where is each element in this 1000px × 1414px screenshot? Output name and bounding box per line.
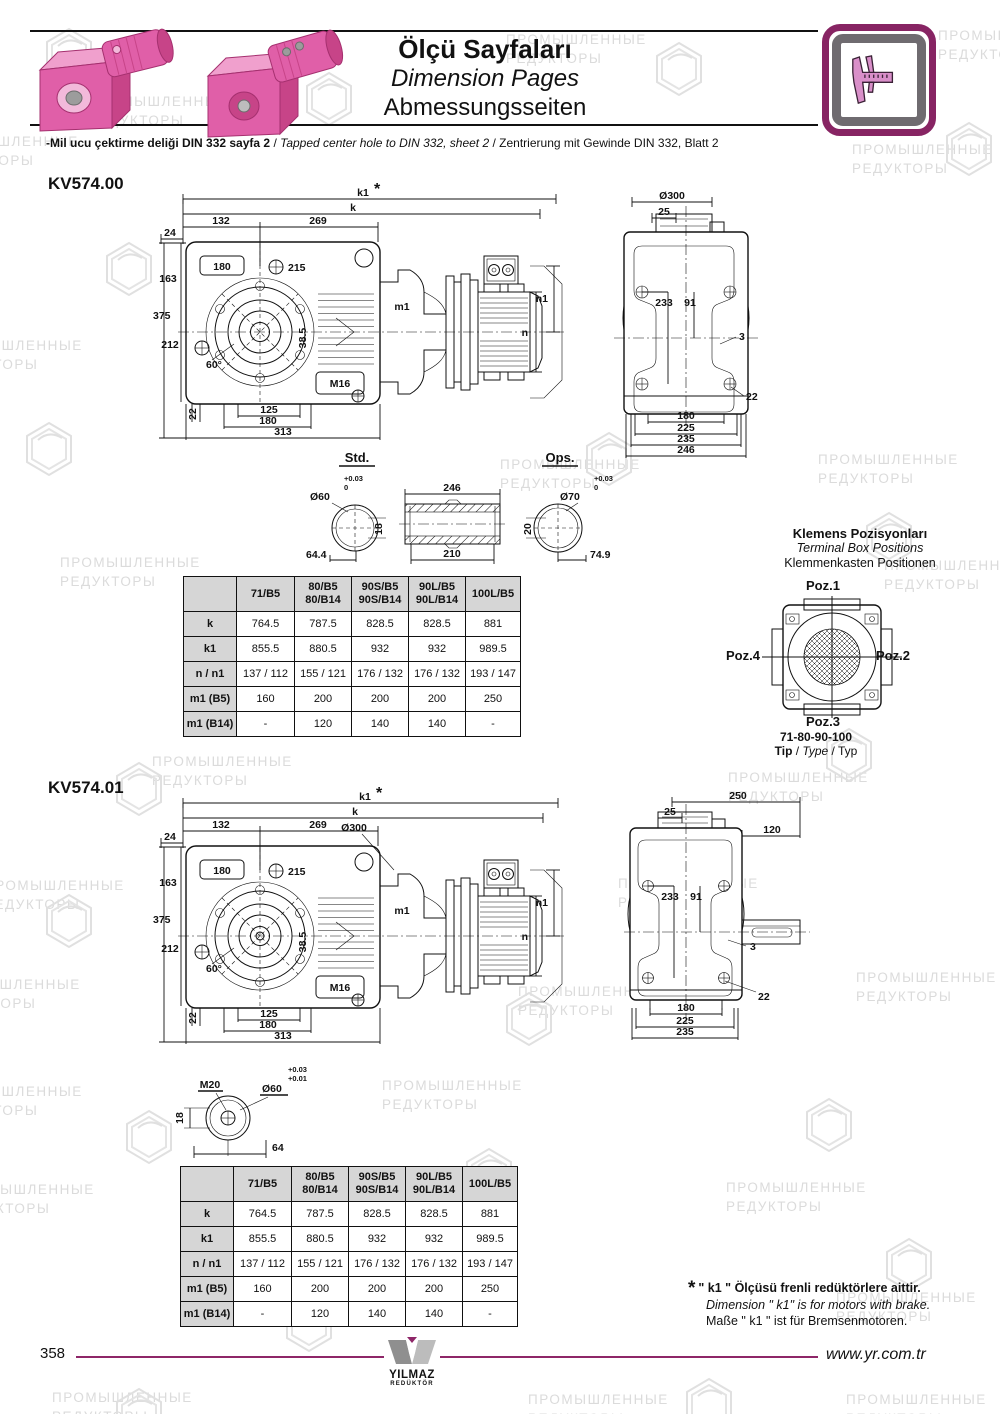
dim-22: 22	[758, 991, 770, 1003]
watermark-text: ПРОМЫШЛЕННЫЕРЕДУКТОРЫ	[846, 1390, 987, 1414]
dimension-value-cell: 787.5	[292, 1202, 349, 1227]
tip-de: Typ	[838, 744, 857, 758]
gearmotor-photo-1	[40, 27, 176, 131]
dim-m16: M16	[330, 982, 351, 994]
dimension-value-cell: 828.5	[352, 612, 409, 637]
dim-375: 375	[153, 310, 171, 322]
brake-footnote: *" k1 " Ölçüsü frenli redüktörlere aitti…	[688, 1280, 930, 1329]
dimension-value-cell: 881	[463, 1202, 518, 1227]
table-row: k1855.5880.5932932989.5	[181, 1227, 518, 1252]
table-row-label: n / n1	[181, 1252, 234, 1277]
table-column-header: 90S/B590S/B14	[349, 1167, 406, 1202]
dim-91: 91	[690, 891, 702, 903]
dimension-value-cell: 137 / 112	[234, 1252, 292, 1277]
table-row-label: k1	[181, 1227, 234, 1252]
footnote-line-turkish: *" k1 " Ölçüsü frenli redüktörlere aitti…	[688, 1280, 930, 1297]
dimension-value-cell: 880.5	[292, 1227, 349, 1252]
dimension-value-cell: 855.5	[237, 637, 295, 662]
std-dia: Ø60	[310, 491, 330, 503]
table-row-label: k1	[184, 637, 237, 662]
dimension-value-cell: 764.5	[234, 1202, 292, 1227]
dimension-value-cell: 200	[352, 687, 409, 712]
dimension-value-cell: 200	[295, 687, 352, 712]
catalog-page: ПРОМЫШЛЕННЫЕРЕДУКТОРЫПРОМЫШЛЕННЫЕРЕДУКТО…	[0, 0, 1000, 1414]
dimension-value-cell: 989.5	[463, 1227, 518, 1252]
page-title: Ölçü Sayfaları Dimension Pages Abmessung…	[250, 34, 720, 122]
logo-name: YILMAZ	[386, 1370, 438, 1381]
dimension-value-cell: 881	[466, 612, 521, 637]
yilmaz-logo-icon	[388, 1337, 436, 1365]
dim-n: n	[522, 931, 528, 943]
poz1-label: Poz.1	[806, 578, 840, 593]
terminal-box-title-german: Klemmenkasten Positionen	[748, 556, 972, 571]
poz2-label: Poz.2	[876, 648, 910, 663]
watermark-text: ПРОМЫШЛЕННЫЕРЕДУКТОРЫ	[60, 553, 201, 591]
shaft-tol-lo: +0.01	[288, 1074, 307, 1083]
housing-side-view	[614, 206, 760, 440]
table-row: m1 (B14)-120140140-	[181, 1302, 518, 1327]
dim-24: 24	[164, 831, 176, 843]
terminal-box-title-turkish: Klemens Pozisyonları	[748, 526, 972, 541]
dimension-value-cell: 932	[352, 637, 409, 662]
terminal-box-type-note: 71-80-90-100 Tip / Type / Typ	[745, 730, 887, 758]
table-column-header: 90S/B590S/B14	[352, 577, 409, 612]
dimension-value-cell: 176 / 132	[409, 662, 466, 687]
table-row-label: m1 (B5)	[184, 687, 237, 712]
shaft-tol-hi: +0.03	[288, 1065, 307, 1074]
dim-163: 163	[159, 273, 177, 285]
std-label: Std.	[345, 450, 370, 465]
table-row-label: k	[181, 1202, 234, 1227]
dim-233: 233	[661, 891, 679, 903]
kv57401-shaft-detail-drawing: M20 +0.03 +0.01 Ø60 18 64	[176, 1058, 376, 1162]
footnote-line-german: Maße " k1 " ist für Bremsenmotoren.	[706, 1313, 930, 1329]
dim-k1: k1	[357, 187, 369, 199]
subtitle-turkish: -Mil ucu çektirme deliği DIN 332 sayfa 2	[46, 136, 270, 150]
dim-313: 313	[274, 426, 292, 438]
dimension-value-cell: 176 / 132	[406, 1252, 463, 1277]
dim-269: 269	[309, 819, 327, 831]
dim-235: 235	[676, 1026, 694, 1038]
dim-180: 180	[677, 1002, 695, 1014]
table-column-header: 90L/B590L/B14	[409, 577, 466, 612]
dimension-value-cell: 828.5	[406, 1202, 463, 1227]
motor-side-profile	[380, 256, 562, 398]
table-column-header: 100L/B5	[463, 1167, 518, 1202]
table-row-label: m1 (B14)	[184, 712, 237, 737]
table-column-header	[184, 577, 237, 612]
dim-163: 163	[159, 877, 177, 889]
footer-rule-right	[440, 1356, 818, 1358]
watermark-hexagon-logo	[40, 892, 98, 950]
dim-k: k	[350, 202, 356, 214]
dimension-labels: k1 * k 132 269 24 Ø300 180 215 163 375 2…	[153, 785, 548, 1042]
dim-m16: M16	[330, 378, 351, 390]
watermark-text: ПРОМЫШЛЕННЫЕРЕДУКТОРЫ	[726, 1178, 867, 1216]
dimension-value-cell: 764.5	[237, 612, 295, 637]
table-row-label: m1 (B5)	[181, 1277, 234, 1302]
table-row: n / n1137 / 112155 / 121176 / 132176 / 1…	[181, 1252, 518, 1277]
dim-k1-star: *	[376, 785, 383, 802]
dimension-value-cell: 250	[463, 1277, 518, 1302]
watermark-text: ПРОМЫШЛЕННЫЕРЕДУКТОРЫ	[528, 1390, 669, 1414]
watermark-text: ПРОМЫШЛЕННЫЕРЕДУКТОРЫ	[818, 450, 959, 488]
subtitle-english: Tapped center hole to DIN 332, sheet 2	[280, 136, 489, 150]
ops-tol-lo: 0	[594, 483, 598, 492]
table-column-header: 80/B580/B14	[292, 1167, 349, 1202]
watermark-hexagon-logo	[120, 1108, 178, 1166]
title-german: Abmessungsseiten	[250, 93, 720, 122]
dim-60deg: 60°	[206, 359, 222, 371]
watermark-hexagon-logo	[680, 1376, 738, 1414]
watermark-hexagon-logo	[110, 1386, 168, 1414]
dimension-value-cell: 193 / 147	[463, 1252, 518, 1277]
std-tol-hi: +0.03	[344, 474, 363, 483]
dim-132: 132	[212, 215, 230, 227]
table-column-header: 90L/B590L/B14	[406, 1167, 463, 1202]
website-link[interactable]: www.yr.com.tr	[826, 1346, 926, 1364]
dimension-value-cell: 828.5	[349, 1202, 406, 1227]
watermark-text: ПРОМЫШЛЕННЫЕРЕДУКТОРЫ	[856, 968, 997, 1006]
dim-k: k	[352, 806, 358, 818]
dim-n1: n1	[536, 293, 548, 305]
table-row: m1 (B14)-120140140-	[184, 712, 521, 737]
dimension-value-cell: 140	[406, 1302, 463, 1327]
dim-215: 215	[288, 262, 306, 274]
table-column-header: 100L/B5	[466, 577, 521, 612]
watermark-text: ПРОМЫШЛЕННЫЕРЕДУКТОРЫ	[382, 1076, 523, 1114]
dimension-labels: k1 * k 132 269 24 180 215 163 375 212 60…	[153, 181, 548, 438]
table-row: k764.5787.5828.5828.5881	[181, 1202, 518, 1227]
ops-label: Ops.	[546, 450, 575, 465]
company-logo: YILMAZ REDÜKTÖR	[386, 1337, 438, 1388]
table-row-label: n / n1	[184, 662, 237, 687]
sleeve-inner-dim: 210	[443, 548, 461, 560]
table-column-header: 71/B5	[237, 577, 295, 612]
dimension-value-cell: 932	[349, 1227, 406, 1252]
watermark-text: ПРОМЫШЛЕННЫЕРЕДУКТОРЫ	[0, 1082, 83, 1120]
terminal-box-title-english: Terminal Box Positions	[748, 541, 972, 556]
dimension-value-cell: 140	[352, 712, 409, 737]
dim-dia300: Ø300	[659, 190, 685, 202]
table-row: m1 (B5)160200200200250	[181, 1277, 518, 1302]
title-turkish: Ölçü Sayfaları	[250, 34, 720, 64]
dim-3: 3	[750, 941, 756, 953]
watermark-hexagon-logo	[20, 420, 78, 478]
footer-rule-left	[76, 1356, 384, 1358]
title-english: Dimension Pages	[250, 64, 720, 93]
dimension-value-cell: 828.5	[409, 612, 466, 637]
table-row-label: m1 (B14)	[181, 1302, 234, 1327]
watermark-text: ПРОМЫШЛЕННЫЕРЕДУКТОРЫ	[938, 26, 1000, 64]
ops-tol-hi: +0.03	[594, 474, 613, 483]
dim-132: 132	[212, 819, 230, 831]
dimension-value-cell: 160	[234, 1277, 292, 1302]
dim-269: 269	[309, 215, 327, 227]
dim-m1: m1	[394, 905, 409, 917]
dim-m20: M20	[200, 1079, 221, 1091]
kv57401-side-drawing: 250 25 120 233 91 3 22 180 225 235	[622, 792, 812, 1040]
motor-side-profile	[380, 860, 562, 1002]
ops-key-dim: 20	[522, 523, 534, 535]
dim-38-5: 38.5	[297, 932, 309, 953]
table-column-header: 71/B5	[234, 1167, 292, 1202]
sleeve-outer-dim: 246	[443, 482, 461, 494]
dimension-value-cell: -	[234, 1302, 292, 1327]
table-row: k764.5787.5828.5828.5881	[184, 612, 521, 637]
dim-22: 22	[187, 1012, 199, 1024]
dimension-value-cell: 880.5	[295, 637, 352, 662]
dimension-value-cell: 787.5	[295, 612, 352, 637]
shaft-options-drawing: Std. +0.03 0 Ø60 18 64.4 246 210 Ops. +0…	[302, 448, 702, 570]
dimension-value-cell: 155 / 121	[295, 662, 352, 687]
table-row: m1 (B5)160200200200250	[184, 687, 521, 712]
dimension-value-cell: 120	[292, 1302, 349, 1327]
housing-side-view	[624, 804, 810, 1026]
poz4-label: Poz.4	[726, 648, 760, 663]
ops-dia: Ø70	[560, 491, 580, 503]
dim-120: 120	[763, 824, 781, 836]
dimension-value-cell: 176 / 132	[352, 662, 409, 687]
dimension-value-cell: 250	[466, 687, 521, 712]
footnote-line-english: Dimension " k1" is for motors with brake…	[706, 1297, 930, 1313]
dim-25: 25	[664, 806, 676, 818]
dimension-value-cell: 932	[409, 637, 466, 662]
dim-180-flange: 180	[213, 865, 231, 877]
caliper-icon-inner-frame	[832, 34, 926, 126]
dim-375: 375	[153, 914, 171, 926]
dim-60deg: 60°	[206, 963, 222, 975]
tip-en: Type	[802, 744, 828, 758]
dim-dia300: Ø300	[341, 822, 367, 834]
tip-tr: Tip	[775, 744, 793, 758]
kv57401-main-drawing: k1 * k 132 269 24 Ø300 180 215 163 375 2…	[148, 790, 568, 1048]
dim-key-18: 18	[174, 1112, 186, 1124]
watermark-text: ПРОМЫШЛЕННЫЕРЕДУКТОРЫ	[0, 336, 83, 374]
section-code-kv57401: KV574.01	[48, 778, 124, 798]
dimension-value-cell: 120	[295, 712, 352, 737]
watermark-text: ПРОМЫШЛЕННЫЕРЕДУКТОРЫ	[152, 752, 293, 790]
dim-180-flange: 180	[213, 261, 231, 273]
std-key-dim: 18	[373, 523, 385, 535]
page-number: 358	[40, 1345, 65, 1362]
dim-dia60: Ø60	[262, 1083, 282, 1095]
table-row: n / n1137 / 112155 / 121176 / 132176 / 1…	[184, 662, 521, 687]
dim-212: 212	[161, 339, 179, 351]
dim-91: 91	[684, 297, 696, 309]
dimension-value-cell: 200	[292, 1277, 349, 1302]
logo-subname: REDÜKTÖR	[386, 1381, 438, 1388]
poz3-label: Poz.3	[806, 714, 840, 729]
watermark-text: ПРОМЫШЛЕННЫЕРЕДУКТОРЫ	[0, 975, 81, 1013]
terminal-box-heading: Klemens Pozisyonları Terminal Box Positi…	[748, 526, 972, 571]
dimension-value-cell: 160	[237, 687, 295, 712]
std-tol-lo: 0	[344, 483, 348, 492]
dimension-value-cell: 137 / 112	[237, 662, 295, 687]
subtitle-german: Zentrierung mit Gewinde DIN 332, Blatt 2	[499, 136, 718, 150]
dimension-value-cell: 140	[409, 712, 466, 737]
dimension-value-cell: -	[463, 1302, 518, 1327]
dimension-value-cell: 855.5	[234, 1227, 292, 1252]
dim-215: 215	[288, 866, 306, 878]
dimension-value-cell: 155 / 121	[292, 1252, 349, 1277]
hollow-shaft-section: 246 210	[399, 482, 506, 564]
dim-k1-star: *	[374, 181, 381, 198]
dim-313: 313	[274, 1030, 292, 1042]
kv57400-side-drawing: Ø300 25 233 91 3 22 180 225 235 246	[612, 188, 798, 458]
dim-25: 25	[658, 206, 670, 218]
subtitle-line: -Mil ucu çektirme deliği DIN 332 sayfa 2…	[46, 136, 719, 150]
kv57400-main-drawing: k1 * k 132 269 24 180 215 163 375 212 60…	[148, 186, 568, 444]
kv57400-dimension-table: 71/B580/B580/B1490S/B590S/B1490L/B590L/B…	[183, 576, 521, 737]
dim-250: 250	[729, 790, 747, 802]
dim-64: 64	[272, 1142, 284, 1154]
std-len: 64.4	[306, 549, 327, 561]
type-caption: Tip / Type / Typ	[745, 744, 887, 758]
dimension-value-cell: 200	[409, 687, 466, 712]
asterisk: *	[688, 1278, 695, 1299]
dim-212: 212	[161, 943, 179, 955]
caliper-icon	[844, 46, 910, 112]
ops-len: 74.9	[590, 549, 611, 561]
dimension-lines	[159, 798, 560, 1044]
dimension-value-cell: 193 / 147	[466, 662, 521, 687]
dim-38-5: 38.5	[297, 328, 309, 349]
dim-24: 24	[164, 227, 176, 239]
table-column-header: 80/B580/B14	[295, 577, 352, 612]
watermark-hexagon-logo	[800, 1096, 858, 1154]
dimension-lines	[159, 194, 560, 440]
dim-k1: k1	[359, 791, 371, 803]
dimension-value-cell: 932	[406, 1227, 463, 1252]
dimension-value-cell: 176 / 132	[349, 1252, 406, 1277]
dim-n1: n1	[536, 897, 548, 909]
cooling-fins	[318, 898, 374, 968]
dim-180: 180	[677, 410, 695, 422]
section-code-kv57400: KV574.00	[48, 174, 124, 194]
kv57401-dimension-table: 71/B580/B580/B1490S/B590S/B1490L/B590L/B…	[180, 1166, 518, 1327]
dimension-value-cell: 200	[406, 1277, 463, 1302]
dimension-value-cell: -	[237, 712, 295, 737]
dimension-value-cell: 140	[349, 1302, 406, 1327]
dimension-value-cell: 989.5	[466, 637, 521, 662]
caliper-icon-frame	[822, 24, 936, 136]
dim-3: 3	[739, 331, 745, 343]
dimension-value-cell: 200	[349, 1277, 406, 1302]
table-row-label: k	[184, 612, 237, 637]
dim-n: n	[522, 327, 528, 339]
dimension-value-cell: -	[466, 712, 521, 737]
cooling-fins	[318, 294, 374, 364]
dim-22: 22	[746, 391, 758, 403]
type-range: 71-80-90-100	[745, 730, 887, 744]
watermark-text: ПРОМЫШЛЕННЫЕРЕДУКТОРЫ	[0, 1180, 95, 1218]
dim-m1: m1	[394, 301, 409, 313]
dim-22: 22	[187, 408, 199, 420]
dim-233: 233	[655, 297, 673, 309]
watermark-hexagon-logo	[940, 120, 998, 178]
table-row: k1855.5880.5932932989.5	[184, 637, 521, 662]
table-column-header	[181, 1167, 234, 1202]
